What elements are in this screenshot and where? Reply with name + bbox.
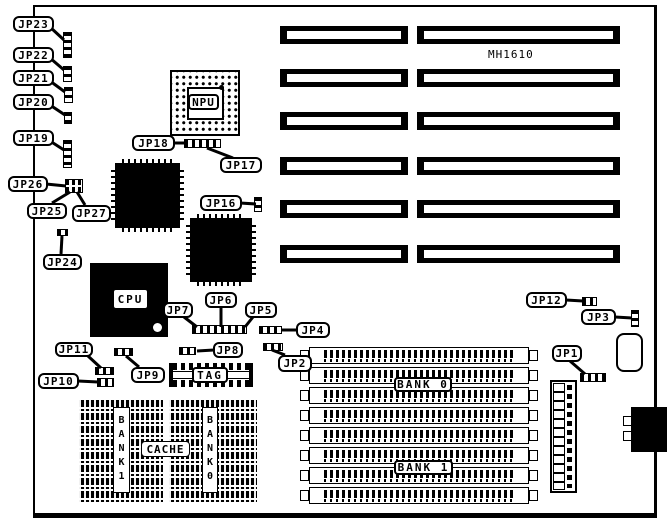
memory-bank1-label: BANK 1	[394, 460, 453, 475]
callout-jp2: JP2	[278, 355, 312, 372]
callout-jp4: JP4	[296, 322, 330, 338]
callout-jp16: JP16	[200, 195, 242, 211]
memory-bank0-label: BANK 0	[394, 377, 452, 392]
callout-jp8: JP8	[213, 342, 243, 358]
callout-jp9: JP9	[131, 367, 165, 383]
callout-jp25: JP25	[27, 203, 67, 219]
motherboard-diagram: MH1610 NPU CPU TAG BANK1 BANK0 CACHE	[0, 0, 667, 527]
cache-bank1-label: BANK1	[113, 407, 130, 493]
callout-jp27: JP27	[72, 205, 111, 222]
callout-jp23: JP23	[13, 16, 54, 32]
callout-jp20: JP20	[13, 94, 54, 110]
callout-jp18: JP18	[132, 135, 175, 151]
callout-jp3: JP3	[581, 309, 616, 325]
cache-label: CACHE	[141, 441, 190, 457]
callout-jp10: JP10	[38, 373, 79, 389]
callout-jp6: JP6	[205, 292, 237, 308]
npu-label: NPU	[188, 94, 219, 110]
callout-jp17: JP17	[220, 157, 262, 173]
callout-jp7: JP7	[163, 302, 193, 318]
callout-jp12: JP12	[526, 292, 567, 308]
cpu-label: CPU	[114, 290, 147, 308]
callout-jp5: JP5	[245, 302, 277, 318]
tag-label: TAG	[192, 367, 228, 383]
callout-pointer-lines	[0, 0, 667, 527]
callout-jp19: JP19	[13, 130, 54, 146]
callout-jp24: JP24	[43, 254, 82, 270]
callout-jp1: JP1	[552, 345, 582, 362]
cache-bank0-label: BANK0	[202, 407, 218, 493]
callout-jp11: JP11	[55, 342, 93, 357]
callout-jp22: JP22	[13, 47, 54, 63]
callout-jp21: JP21	[13, 70, 54, 86]
callout-jp26: JP26	[8, 176, 48, 192]
